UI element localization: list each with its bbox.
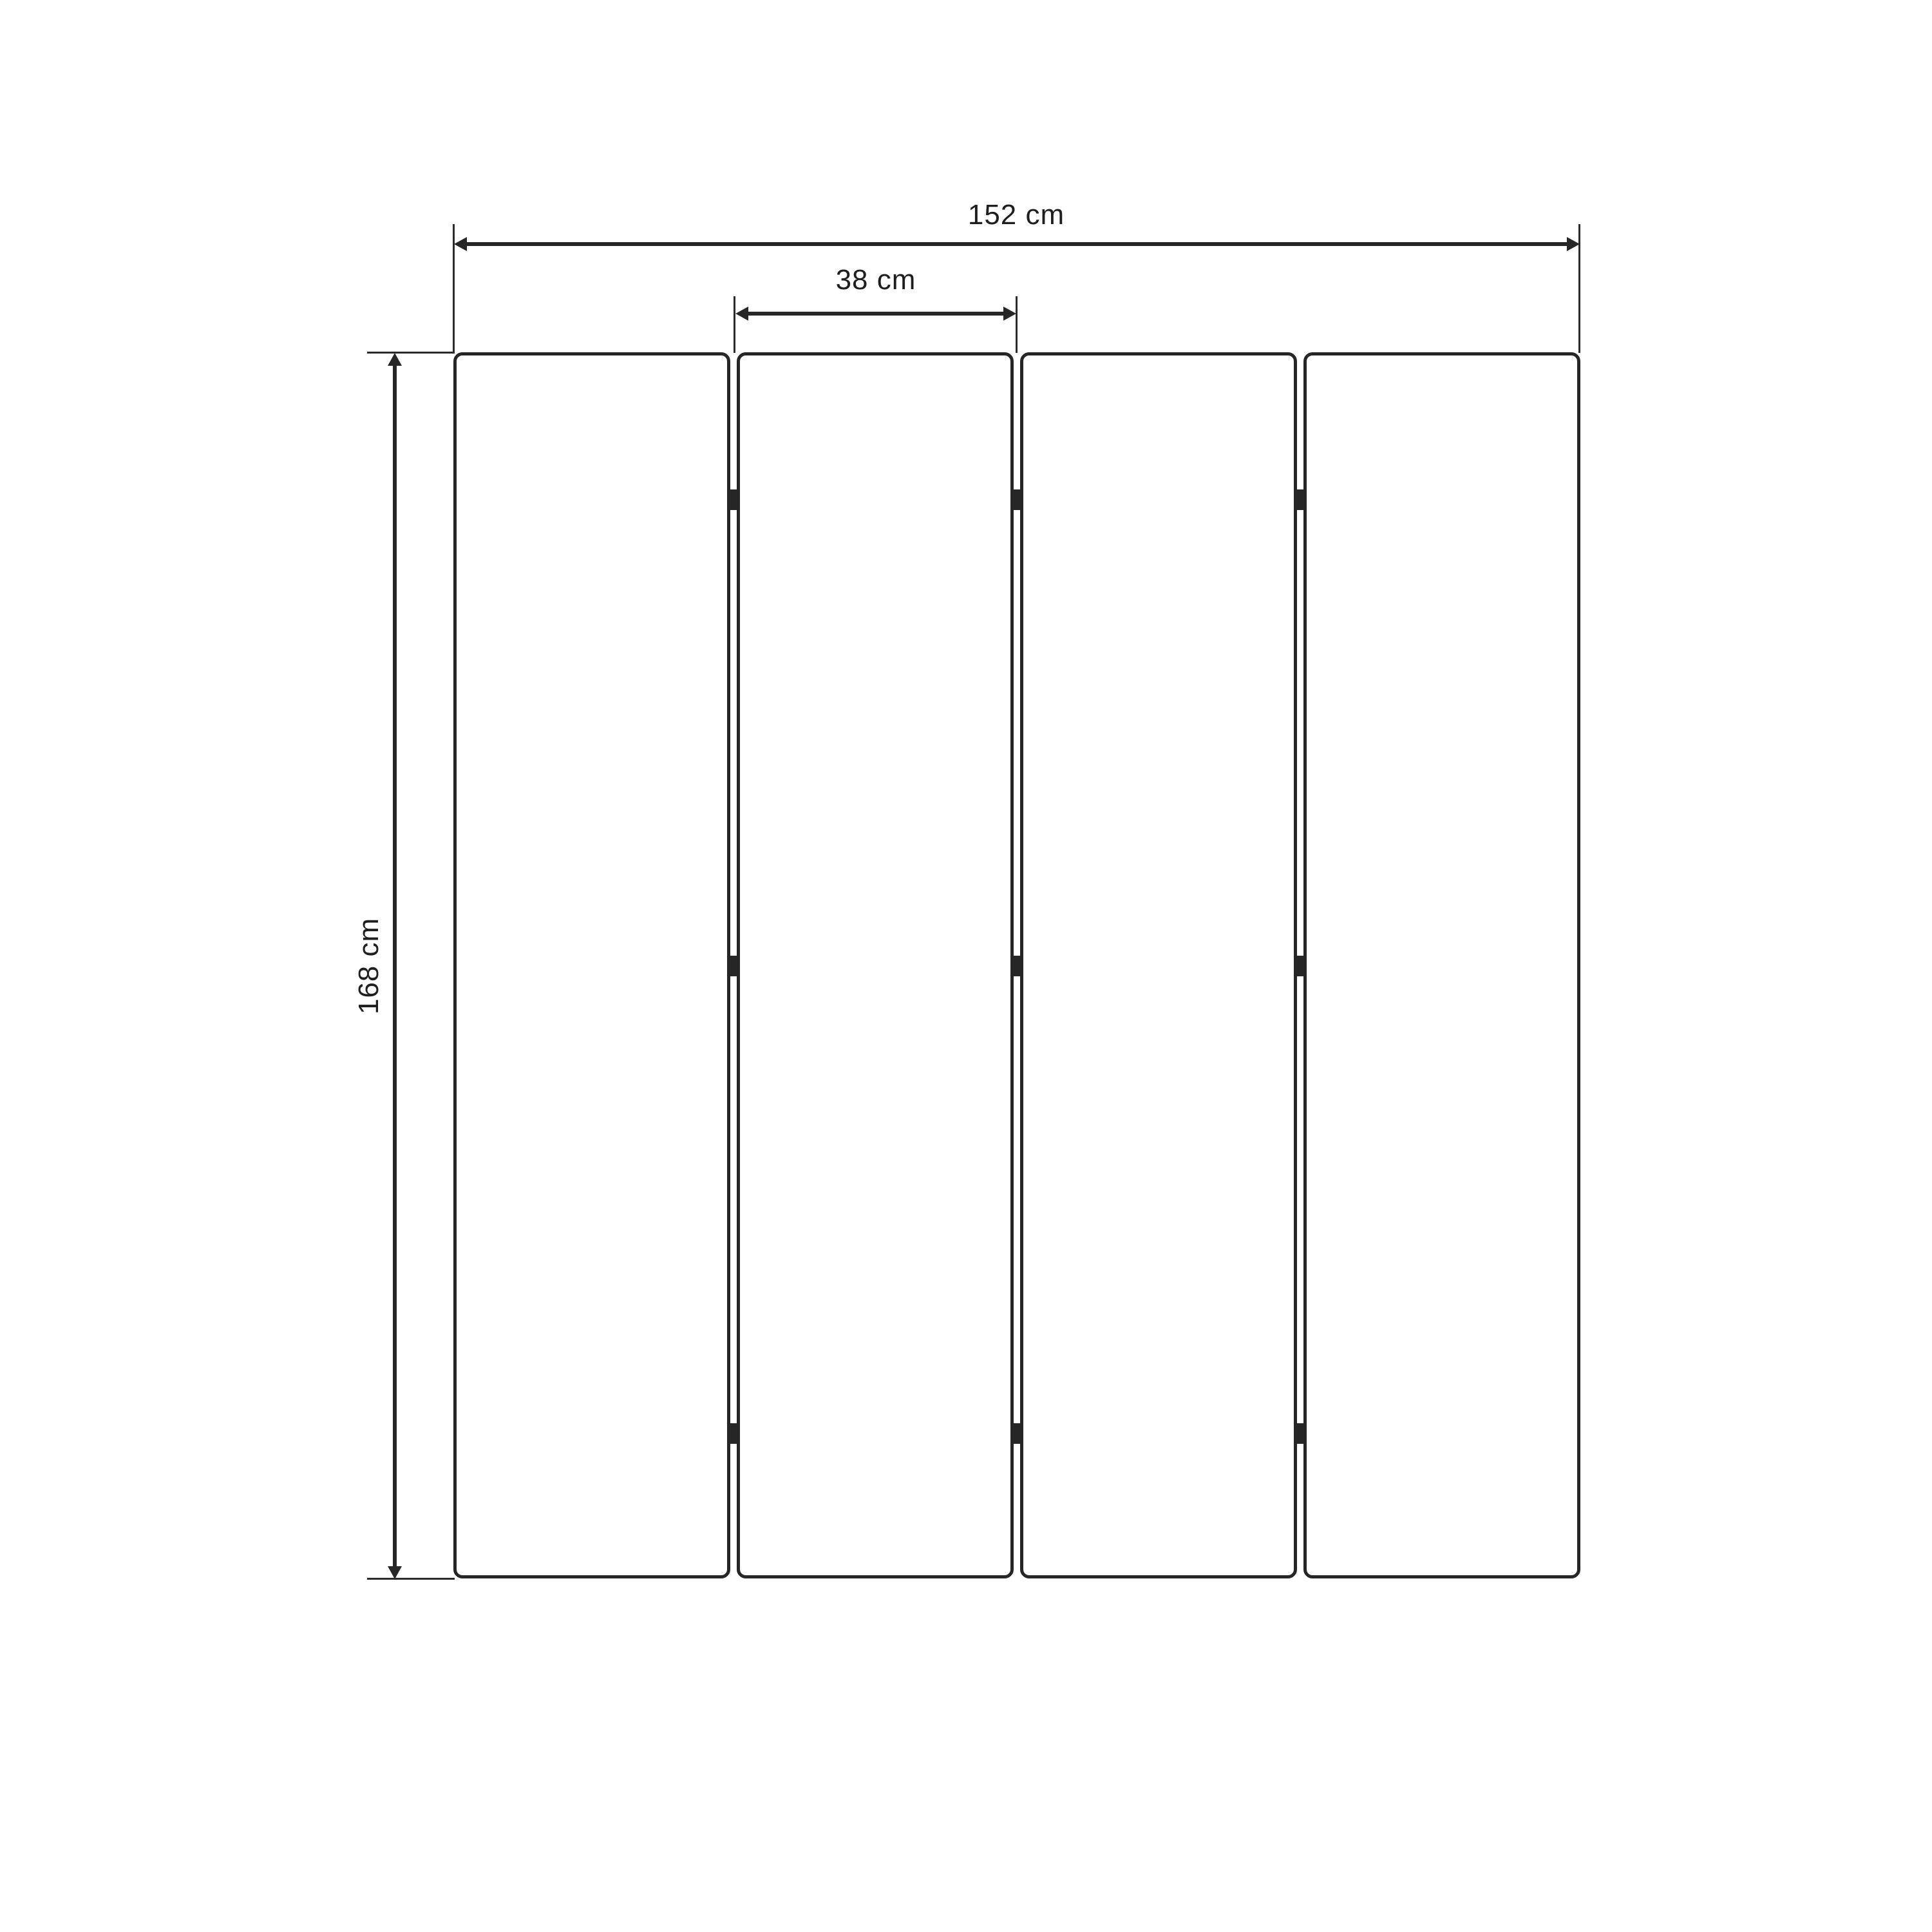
hinge-icon xyxy=(1012,956,1021,976)
arrowhead-down-icon xyxy=(388,1566,402,1579)
hinge-icon xyxy=(729,1423,738,1444)
hinge-icon xyxy=(729,489,738,510)
arrowhead-left-icon xyxy=(735,307,748,321)
arrowhead-right-icon xyxy=(1567,237,1580,251)
arrowhead-up-icon xyxy=(388,353,402,366)
divider-panel-3 xyxy=(1020,352,1297,1578)
total-width-label: 152 cm xyxy=(887,195,1145,235)
height-extension-line-top xyxy=(367,352,455,354)
panel-width-label: 38 cm xyxy=(747,260,1005,300)
arrowhead-right-icon xyxy=(1003,307,1016,321)
height-dimension-line xyxy=(393,365,397,1567)
hinge-icon xyxy=(1012,1423,1021,1444)
hinge-icon xyxy=(1012,489,1021,510)
hinge-icon xyxy=(1296,956,1305,976)
hinge-icon xyxy=(1296,1423,1305,1444)
hinge-icon xyxy=(1296,489,1305,510)
divider-panel-2 xyxy=(737,352,1014,1578)
total-width-dimension-line xyxy=(466,242,1567,246)
panel-width-extension-line-right xyxy=(1016,296,1018,353)
height-label: 168 cm xyxy=(349,837,389,1095)
hinge-icon xyxy=(729,956,738,976)
dimension-diagram: 152 cm 38 cm 168 cm xyxy=(0,0,1932,1932)
height-extension-line-bottom xyxy=(367,1578,455,1580)
arrowhead-left-icon xyxy=(454,237,467,251)
divider-panel-4 xyxy=(1303,352,1580,1578)
panel-width-dimension-line xyxy=(747,312,1005,316)
panel-width-extension-line-left xyxy=(734,296,735,353)
divider-panel-1 xyxy=(453,352,730,1578)
